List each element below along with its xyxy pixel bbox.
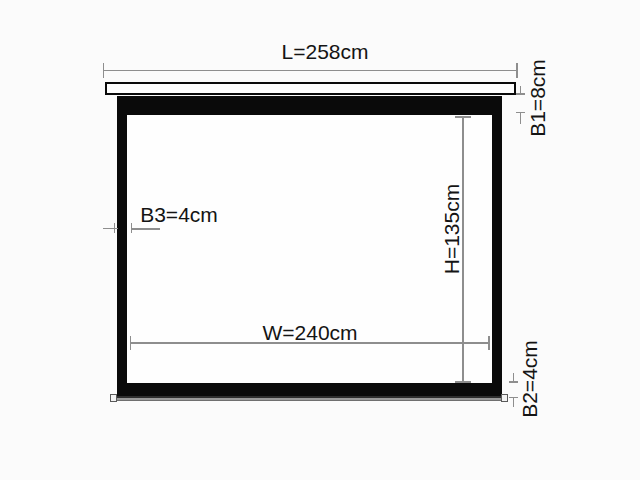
screen-casing bbox=[105, 82, 516, 95]
dimension-tick-W-right bbox=[488, 336, 490, 350]
dimension-label-L: L=258cm bbox=[282, 41, 369, 62]
dimension-label-B3: B3=4cm bbox=[140, 204, 218, 225]
weight-bar-endcap-right bbox=[501, 394, 508, 402]
dimension-label-W: W=240cm bbox=[262, 322, 357, 343]
dimension-cap-B1-upper bbox=[516, 93, 525, 95]
dimension-cap-B2-upper bbox=[509, 381, 518, 383]
dimension-label-B1: B1=8cm bbox=[527, 59, 548, 137]
dimension-line-B3-right bbox=[131, 228, 160, 230]
dimension-label-H: H=135cm bbox=[441, 184, 462, 274]
dimension-tick-B3-left bbox=[114, 223, 116, 233]
screen-dimension-diagram: L=258cm B1=8cm B3=4cm H=135cm W=240cm B2… bbox=[0, 0, 640, 480]
dimension-tick-B1-lower bbox=[520, 113, 522, 124]
weight-bar-endcap-left bbox=[110, 394, 117, 402]
screen-weight-bar bbox=[115, 396, 505, 401]
dimension-line-W bbox=[130, 342, 489, 344]
dimension-cap-H-bottom bbox=[455, 381, 471, 383]
dimension-tick-L-right bbox=[516, 63, 518, 78]
dimension-line-B3-left bbox=[103, 228, 118, 230]
dimension-line-L bbox=[103, 70, 517, 72]
dimension-cap-H-top bbox=[455, 116, 471, 118]
dimension-label-B2: B2=4cm bbox=[519, 340, 540, 418]
dimension-tick-L-left bbox=[103, 63, 105, 78]
dimension-tick-B2-lower bbox=[513, 398, 515, 407]
dimension-tick-W-left bbox=[130, 336, 132, 350]
